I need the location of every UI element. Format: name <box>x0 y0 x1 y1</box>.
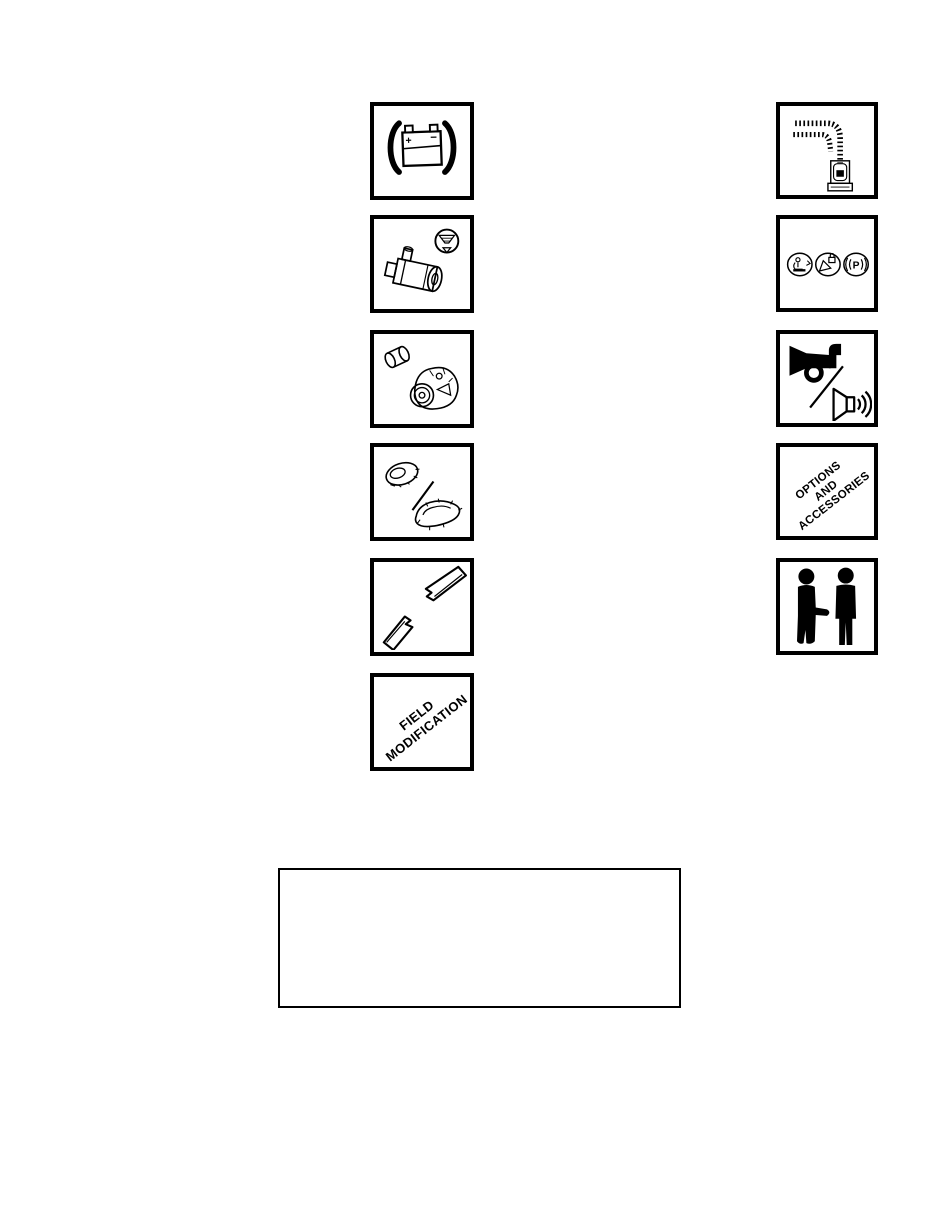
wiring-harness-icon <box>782 108 872 193</box>
torn-belt-icon <box>376 564 468 650</box>
interlock-symbol <box>820 254 835 271</box>
notes-box <box>278 868 681 1008</box>
horn-audio-icon-box <box>776 330 878 427</box>
belt-icon-box <box>370 558 474 656</box>
field-modification-box: FIELD MODIFICATION <box>370 673 474 771</box>
options-accessories-box: OPTIONS AND ACCESSORIES <box>776 443 878 540</box>
personnel-icon-box <box>776 558 878 655</box>
indicator-lights-icon: P <box>782 221 872 306</box>
battery-plus-label: + <box>405 135 412 147</box>
horn-speaker-icon <box>782 336 872 421</box>
starter-motor-icon <box>376 221 468 307</box>
hour-meter-symbol <box>793 258 810 272</box>
starter-motor-icon-box <box>370 215 474 313</box>
field-modification-label: FIELD MODIFICATION <box>373 679 470 765</box>
wiring-harness-icon-box <box>776 102 878 199</box>
battery-minus-label: − <box>430 132 437 144</box>
alternator-icon-box <box>370 330 474 428</box>
two-persons-icon <box>782 564 872 649</box>
parking-brake-letter: P <box>853 261 860 272</box>
tire-track-icon <box>376 449 468 535</box>
manual-page: + − <box>0 0 935 1210</box>
horn-symbol <box>790 344 842 376</box>
tire-track-icon-box <box>370 443 474 541</box>
battery-icon: + − <box>376 108 468 194</box>
options-accessories-label: OPTIONS AND ACCESSORIES <box>781 449 873 533</box>
parking-brake-symbol: P <box>846 258 867 272</box>
alternator-icon <box>376 336 468 422</box>
battery-icon-box: + − <box>370 102 474 200</box>
speaker-symbol <box>834 389 855 421</box>
indicator-symbols-icon-box: P <box>776 215 878 312</box>
